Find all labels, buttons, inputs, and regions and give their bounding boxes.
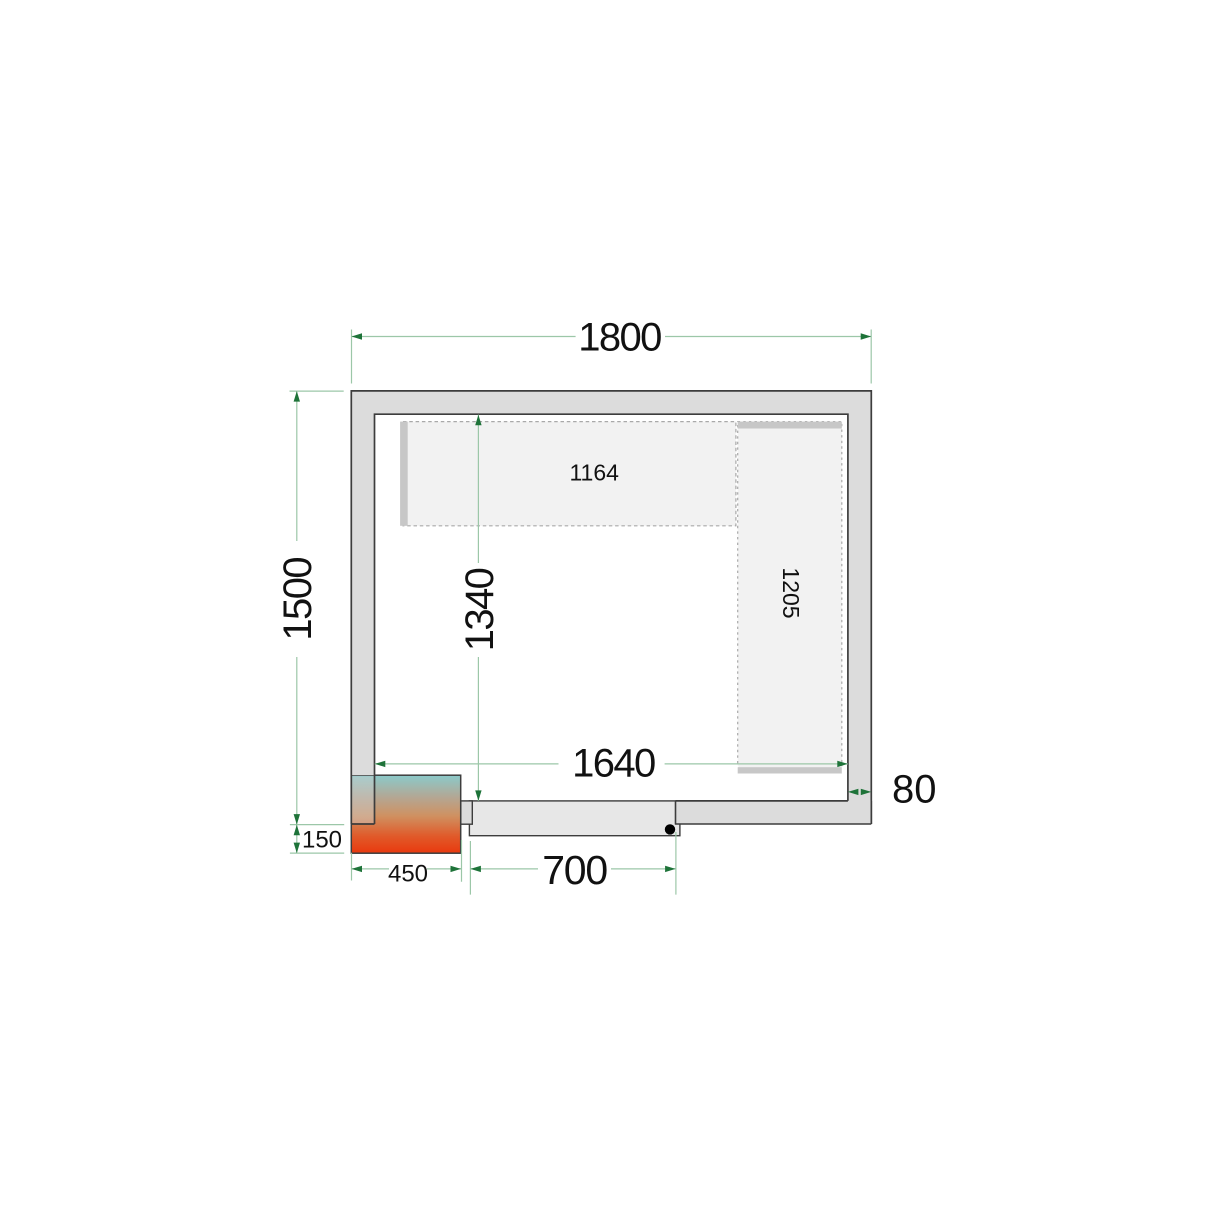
svg-text:80: 80	[892, 767, 937, 811]
svg-text:700: 700	[542, 847, 607, 893]
svg-text:1640: 1640	[572, 742, 655, 786]
svg-text:450: 450	[388, 860, 428, 887]
svg-text:1800: 1800	[578, 315, 661, 359]
svg-text:1340: 1340	[458, 568, 502, 651]
svg-text:1500: 1500	[276, 558, 320, 641]
svg-text:1205: 1205	[778, 567, 804, 618]
svg-text:1164: 1164	[569, 460, 619, 486]
svg-text:150: 150	[302, 827, 342, 854]
